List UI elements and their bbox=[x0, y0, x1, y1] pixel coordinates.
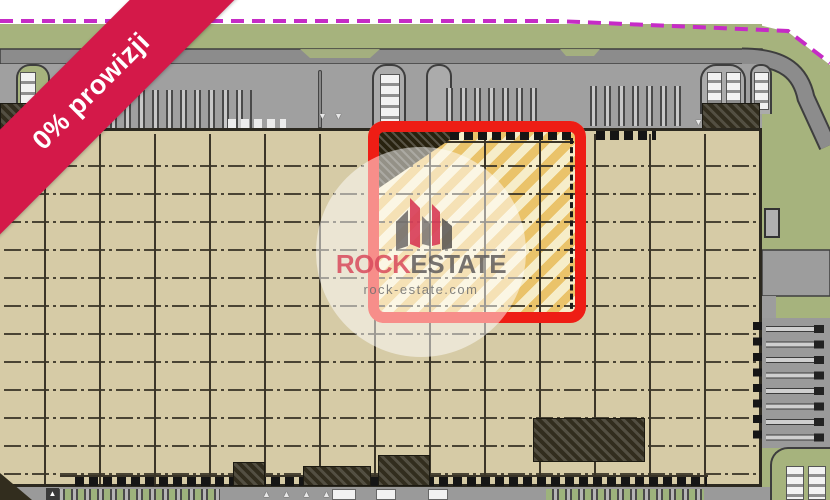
rock-estate-logo-icon bbox=[388, 194, 458, 254]
office-block-bottom-4 bbox=[533, 418, 645, 462]
entrance-marker-icon-1: ▼ bbox=[318, 112, 327, 121]
parking-stalls-bottom-2 bbox=[376, 489, 396, 500]
watermark-domain: rock-estate.com bbox=[316, 282, 526, 297]
truck-cabs-right bbox=[814, 322, 824, 444]
entrance-marker-icon-7: ▲ bbox=[322, 490, 331, 499]
entrance-marker-icon-3: ▼ bbox=[694, 118, 703, 127]
office-block-bottom-3 bbox=[378, 455, 430, 486]
driveway-opening-1 bbox=[300, 49, 380, 58]
side-ramp-structure bbox=[764, 208, 780, 238]
dock-door-markers-wall bbox=[228, 119, 286, 128]
dock-doors-row-adjacent bbox=[596, 131, 656, 140]
trailer-bays-bottom-left bbox=[52, 489, 220, 500]
trailer-spots-group-3 bbox=[590, 86, 682, 126]
plan-canvas[interactable]: ▼ ▼ ▼ ▲ ▲ ▲ ▲ ▲ bbox=[0, 0, 830, 500]
parking-stalls-br-b bbox=[808, 466, 826, 500]
office-block-bottom-1 bbox=[233, 462, 265, 486]
parking-stalls-br-a bbox=[786, 466, 804, 500]
parking-stalls-bottom-1 bbox=[332, 489, 356, 500]
driveway-opening-2 bbox=[560, 49, 600, 56]
side-road-band bbox=[762, 250, 830, 296]
parking-stalls-center bbox=[380, 74, 400, 122]
parking-island-center bbox=[372, 64, 406, 126]
entrance-marker-box: ▲ bbox=[46, 488, 59, 500]
dock-doors-column-right bbox=[753, 322, 762, 444]
watermark-brand: ROCKESTATE bbox=[316, 250, 526, 278]
entrance-marker-icon-2: ▼ bbox=[334, 112, 343, 121]
brand-primary-text: ROCK bbox=[336, 249, 411, 279]
entrance-marker-icon-6: ▲ bbox=[302, 490, 311, 499]
parking-island-bottomright bbox=[770, 447, 830, 500]
parking-stalls-bottom-3 bbox=[428, 489, 448, 500]
trailer-spots-right bbox=[766, 322, 816, 444]
office-block-bottom-2 bbox=[303, 466, 371, 486]
trailer-bays-bottom-right bbox=[546, 489, 704, 500]
entrance-marker-icon-5: ▲ bbox=[282, 490, 291, 499]
brand-secondary-text: ESTATE bbox=[410, 249, 506, 279]
entrance-marker-icon-4: ▲ bbox=[262, 490, 271, 499]
wall-connector-path bbox=[762, 296, 776, 320]
